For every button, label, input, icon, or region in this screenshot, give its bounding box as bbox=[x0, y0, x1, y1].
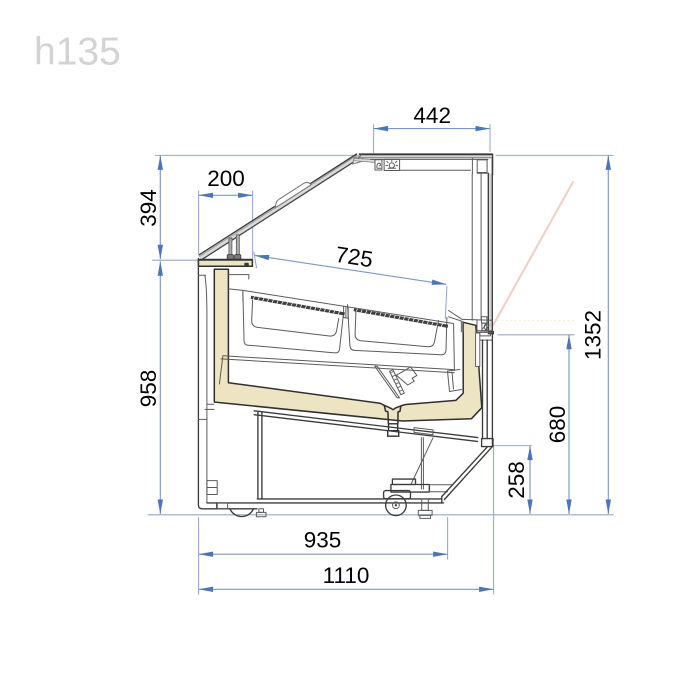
svg-text:1352: 1352 bbox=[581, 310, 606, 360]
svg-text:680: 680 bbox=[545, 406, 570, 444]
svg-text:442: 442 bbox=[413, 103, 451, 128]
svg-text:1110: 1110 bbox=[323, 563, 370, 588]
svg-text:200: 200 bbox=[207, 166, 245, 191]
svg-text:935: 935 bbox=[304, 527, 342, 552]
svg-text:394: 394 bbox=[136, 189, 161, 227]
svg-text:958: 958 bbox=[136, 370, 161, 408]
svg-text:h135: h135 bbox=[34, 31, 121, 74]
svg-text:258: 258 bbox=[504, 461, 529, 499]
